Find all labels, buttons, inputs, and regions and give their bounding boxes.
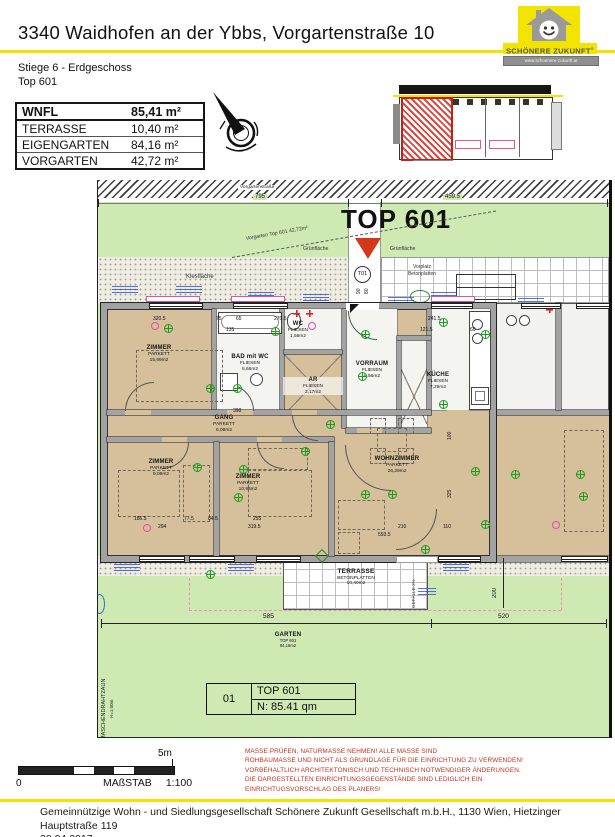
room-area: 7,29m2 xyxy=(408,385,468,391)
window xyxy=(431,303,473,309)
scale-segment xyxy=(114,767,134,774)
disclaimer-line: DIE DARGESTELLTEN EINRICHTUNGSGEGENSTÄND… xyxy=(245,775,575,784)
siteplan-terrace xyxy=(489,140,515,149)
furniture-wardrobe xyxy=(564,430,604,532)
dimension-tick xyxy=(431,619,432,628)
furniture-sofa xyxy=(338,500,385,530)
dim-label: 77.5 xyxy=(184,516,194,522)
window-well xyxy=(431,296,475,302)
footer-accent-rule xyxy=(0,799,615,802)
window xyxy=(149,303,203,309)
scale-zero-label: 0 xyxy=(16,778,22,789)
siteplan-street-band xyxy=(399,85,551,94)
area-summary-table: WNFL 85,41 m² TERRASSE 10,40 m² EIGENGAR… xyxy=(15,102,205,170)
fixture-cross-icon xyxy=(293,310,300,317)
scale-word: MAßSTAB xyxy=(103,777,152,789)
table-row: TERRASSE 10,40 m² xyxy=(17,121,203,137)
table-row: EIGENGARTEN 84,16 m² xyxy=(17,137,203,153)
electric-symbol-icon xyxy=(206,384,215,393)
dim-label: 459.5 xyxy=(443,194,462,200)
electric-symbol-icon xyxy=(164,324,173,333)
electric-symbol-icon xyxy=(358,372,367,381)
window xyxy=(561,556,608,562)
room-label: ZIMMER PARKETT 9,08m2 xyxy=(131,459,191,477)
wall xyxy=(427,309,431,415)
window xyxy=(139,556,185,562)
area-row-value: 42,72 m² xyxy=(131,154,203,168)
furniture-table xyxy=(377,428,407,452)
logo-url-bar: www.schoenere-zukunft.at xyxy=(503,56,599,66)
electric-symbol-icon xyxy=(579,492,588,501)
stove-fixture xyxy=(471,387,489,405)
dim-label: 110 xyxy=(443,524,451,530)
wall xyxy=(107,410,431,415)
wall xyxy=(496,410,609,415)
fence-height-label: H=1,00m xyxy=(109,658,114,718)
site-key-plan xyxy=(393,82,563,178)
dim-label: 100 xyxy=(447,416,453,440)
scale-max-label: 5m xyxy=(158,748,172,759)
room-area: 5,66m2 xyxy=(220,367,280,373)
dim-label: 270.5 xyxy=(274,316,287,322)
dim-label: 65 xyxy=(236,316,242,322)
disclaimer-text: MASSE PRÜFEN, NATURMASSE NEHMEN! ALLE MA… xyxy=(245,747,575,794)
unit-marker-arrow-icon xyxy=(355,238,381,259)
siteplan-right-annex xyxy=(551,102,562,150)
utility-annotation xyxy=(228,564,254,572)
room-label: ZIMMER PARKETT 15,99m2 xyxy=(129,345,189,363)
wall xyxy=(556,303,561,410)
area-row-value: 85,41 m² xyxy=(131,105,203,119)
dim-label: 520 xyxy=(498,613,509,620)
unit-name: TOP 601 xyxy=(252,684,355,700)
room-area: 10,96m2 xyxy=(218,487,278,493)
siteplan-highlighted-unit xyxy=(401,97,453,161)
slope-note: GEFÄLLE 2% xyxy=(411,564,416,608)
scale-caption: MAßSTAB 1:100 xyxy=(103,777,192,789)
garden-boundary-dashed xyxy=(189,610,561,611)
area-row-value: 84,16 m² xyxy=(131,138,203,152)
garden-area-value: 84,16m2 xyxy=(258,644,318,649)
wall xyxy=(284,350,342,354)
dim-label: 398 xyxy=(233,408,241,414)
furniture-wardrobe xyxy=(248,448,308,470)
electric-symbol-icon xyxy=(361,330,370,339)
fixture-cross-icon xyxy=(306,310,313,317)
siteplan-terrace xyxy=(455,140,481,149)
room-label: AR FLIESEN 2,17m2 xyxy=(283,377,343,395)
terrace-label: TERRASSE BETONPLATTEN 10,40m2 xyxy=(325,568,387,587)
forecourt-label: Vorplatz Betonplatten xyxy=(390,264,454,277)
dimension-tick xyxy=(607,199,608,207)
scale-bar-segments xyxy=(18,766,175,775)
footer: Gemeinnützige Wohn - und Siedlungsgesell… xyxy=(40,806,605,837)
electric-symbol-icon xyxy=(471,467,480,476)
dim-label: 319.5 xyxy=(248,524,261,530)
window xyxy=(438,556,481,562)
electric-symbol-icon xyxy=(388,490,397,499)
electric-symbol-icon xyxy=(576,470,585,479)
dim-label: 294 xyxy=(158,524,166,530)
fence-label: MASCHENDRAHTZAUN xyxy=(101,640,107,738)
siteplan-partition xyxy=(519,98,520,157)
area-row-value: 10,40 m² xyxy=(131,122,203,136)
window-well xyxy=(231,296,285,302)
disclaimer-line: MASSE PRÜFEN, NATURMASSE NEHMEN! ALLE MA… xyxy=(245,747,575,756)
marker-symbol-icon xyxy=(151,322,159,330)
dimension-tick xyxy=(606,619,607,628)
dim-label: 210 xyxy=(398,524,406,530)
room-area: 6,56m2 xyxy=(342,374,402,380)
window xyxy=(233,303,288,309)
disclaimer-line: EINRICHTUGSVORSCHLAG DES PLANERS! xyxy=(245,785,575,794)
dim-label: 255 xyxy=(253,516,261,522)
electric-symbol-icon xyxy=(233,384,242,393)
electric-symbol-icon xyxy=(301,447,310,456)
window xyxy=(521,303,561,309)
company-address-line: Gemeinnützige Wohn - und Siedlungsgesell… xyxy=(40,806,605,833)
utility-annotation xyxy=(114,564,140,572)
siteplan-left-wing xyxy=(393,104,400,144)
window xyxy=(576,303,611,309)
wall xyxy=(214,442,219,556)
room-label: KÜCHE FLIESEN 7,29m2 xyxy=(408,372,468,390)
north-compass-icon xyxy=(204,90,268,156)
unit-marker-title: TOP 601 xyxy=(341,204,451,235)
dim-label: 135 xyxy=(226,327,234,333)
page-title: 3340 Waidhofen an der Ybbs, Vorgartenstr… xyxy=(18,22,434,44)
marker-symbol-icon xyxy=(143,524,151,532)
dimension-line xyxy=(503,558,504,608)
electric-symbol-icon xyxy=(234,493,243,502)
dim-label: 241.5 xyxy=(428,316,441,322)
room-area: 2,17m2 xyxy=(283,390,343,396)
unit-number: 01 xyxy=(207,684,252,714)
dim-label: 320.5 xyxy=(153,316,166,322)
dimension-tick xyxy=(98,199,99,207)
staircase-floor-label: Stiege 6 - Erdgeschoss xyxy=(18,62,132,76)
dim-label: 90 xyxy=(356,276,362,294)
logo-brand: Schönere Zukunft xyxy=(506,47,591,56)
plan-date: 20.04.2017 xyxy=(40,833,605,837)
window xyxy=(189,556,235,562)
scale-ratio: 1:100 xyxy=(166,777,192,789)
room-name: TERRASSE xyxy=(325,568,387,576)
electric-symbol-icon xyxy=(326,420,335,429)
electric-symbol-icon xyxy=(361,490,370,499)
dimension-line xyxy=(101,623,607,624)
dim-label: 75 xyxy=(216,316,222,322)
electric-symbol-icon xyxy=(481,330,490,339)
siteplan-caption-line xyxy=(413,160,453,161)
room-area: 15,99m2 xyxy=(129,358,189,364)
room-area: 10,40m2 xyxy=(325,581,387,587)
table-row: WNFL 85,41 m² xyxy=(17,104,203,121)
room-label: BAD mit WC FLIESEN 5,66m2 xyxy=(220,354,280,372)
scale-bar: 5m 0 MAßSTAB 1:100 xyxy=(18,748,218,794)
area-row-label: WNFL xyxy=(17,105,131,119)
electric-symbol-icon xyxy=(271,327,280,336)
sink-fixture xyxy=(519,315,530,326)
marker-symbol-icon xyxy=(308,322,316,330)
plan-document-page: 3340 Waidhofen an der Ybbs, Vorgartenstr… xyxy=(0,0,615,837)
area-row-label: EIGENGARTEN xyxy=(17,138,131,152)
electric-symbol-icon xyxy=(193,463,202,472)
wall xyxy=(329,442,334,556)
electric-symbol-icon xyxy=(481,520,490,529)
electric-symbol-icon xyxy=(421,545,430,554)
street-hatch-strip xyxy=(98,180,609,198)
unit-info-box: 01 TOP 601 N: 85.41 qm xyxy=(206,683,356,715)
room-label: WOHNZIMMER PARKETT 26,29m2 xyxy=(366,456,428,474)
room-area: 9,08m2 xyxy=(131,472,191,478)
logo-house-box xyxy=(518,6,580,43)
scale-segment xyxy=(74,767,94,774)
dim-label: 121.5 xyxy=(420,327,433,333)
utility-annotation xyxy=(443,564,469,572)
sink-fixture xyxy=(250,373,263,386)
gravel-label: Kiesfläche xyxy=(186,274,214,280)
window-well xyxy=(146,296,200,302)
smiling-house-icon xyxy=(518,6,580,43)
sink-fixture xyxy=(506,315,517,326)
plan-subtitle: Stiege 6 - Erdgeschoss Top 601 xyxy=(18,62,132,89)
green-area-label: Grünfläche xyxy=(390,246,415,252)
wall xyxy=(107,437,334,442)
disclaimer-line: ROHBAUMASSE UND NICHT ALS GRUNDLAGE FÜR … xyxy=(245,756,575,765)
window xyxy=(256,556,301,562)
unit-label: Top 601 xyxy=(18,76,132,90)
door-opening xyxy=(447,410,469,415)
room-label: VORRAUM FLIESEN 6,56m2 xyxy=(342,361,402,379)
garden-boundary-dashed xyxy=(189,578,190,610)
dim-label: 200 xyxy=(492,568,498,598)
table-row: VORGARTEN 42,72 m² xyxy=(17,153,203,168)
electric-symbol-icon xyxy=(206,570,215,579)
green-area-label: Grünfläche xyxy=(303,246,328,252)
room-label: GANG PARKETT 6,08m2 xyxy=(194,415,254,433)
room-area: 6,08m2 xyxy=(194,428,254,434)
electric-symbol-icon xyxy=(511,470,520,479)
scale-segment xyxy=(19,767,74,774)
utility-annotation xyxy=(303,294,329,302)
dimension-tick xyxy=(101,619,102,628)
room-area: 26,29m2 xyxy=(366,469,428,475)
logo-registered-mark: ® xyxy=(591,46,594,51)
floor-plan-sheet: Vorgartenstraße 795 459.5 TOP 601 Vorgar… xyxy=(97,180,612,738)
electric-symbol-icon xyxy=(239,465,248,474)
area-row-label: TERRASSE xyxy=(17,122,131,136)
furniture-side-table xyxy=(338,532,360,554)
dim-label: 585 xyxy=(263,613,274,620)
entrance-door-wedge xyxy=(350,304,359,313)
scale-segment xyxy=(94,767,114,774)
utility-annotation xyxy=(418,588,436,596)
dim-label: 80 xyxy=(364,276,370,294)
terrace-door-opening xyxy=(396,556,438,563)
dim-label: 186.5 xyxy=(134,516,147,522)
dim-label: 795 xyxy=(253,194,267,200)
siteplan-window-band xyxy=(453,99,549,105)
wall xyxy=(397,336,431,340)
disclaimer-line: VORBEHALTLICH ARCHITEKTONISCH UND TECHNI… xyxy=(245,766,575,775)
garden-label: GARTEN TOP 601 84,16m2 xyxy=(258,632,318,649)
dim-label: 60 xyxy=(470,327,476,333)
street-label: Vorgartenstraße xyxy=(238,185,276,190)
forecourt-label-line: Betonplatten xyxy=(390,271,454,278)
marker-symbol-icon xyxy=(552,521,560,529)
dim-label: 325 xyxy=(447,468,453,498)
siteplan-partition xyxy=(485,98,486,157)
dim-label: 84.5 xyxy=(208,516,218,522)
garden-boundary-dashed xyxy=(561,578,562,610)
utility-annotation xyxy=(112,286,138,294)
scale-segment xyxy=(134,767,174,774)
unit-area: N: 85.41 qm xyxy=(252,700,355,715)
utility-annotation xyxy=(176,286,202,294)
dim-label: 593.5 xyxy=(378,532,391,538)
area-row-label: VORGARTEN xyxy=(17,154,131,168)
room-label: ZIMMER PARKETT 10,96m2 xyxy=(218,474,278,492)
electric-symbol-icon xyxy=(439,400,448,409)
logo-brand-text: Schönere Zukunft® xyxy=(503,43,597,54)
